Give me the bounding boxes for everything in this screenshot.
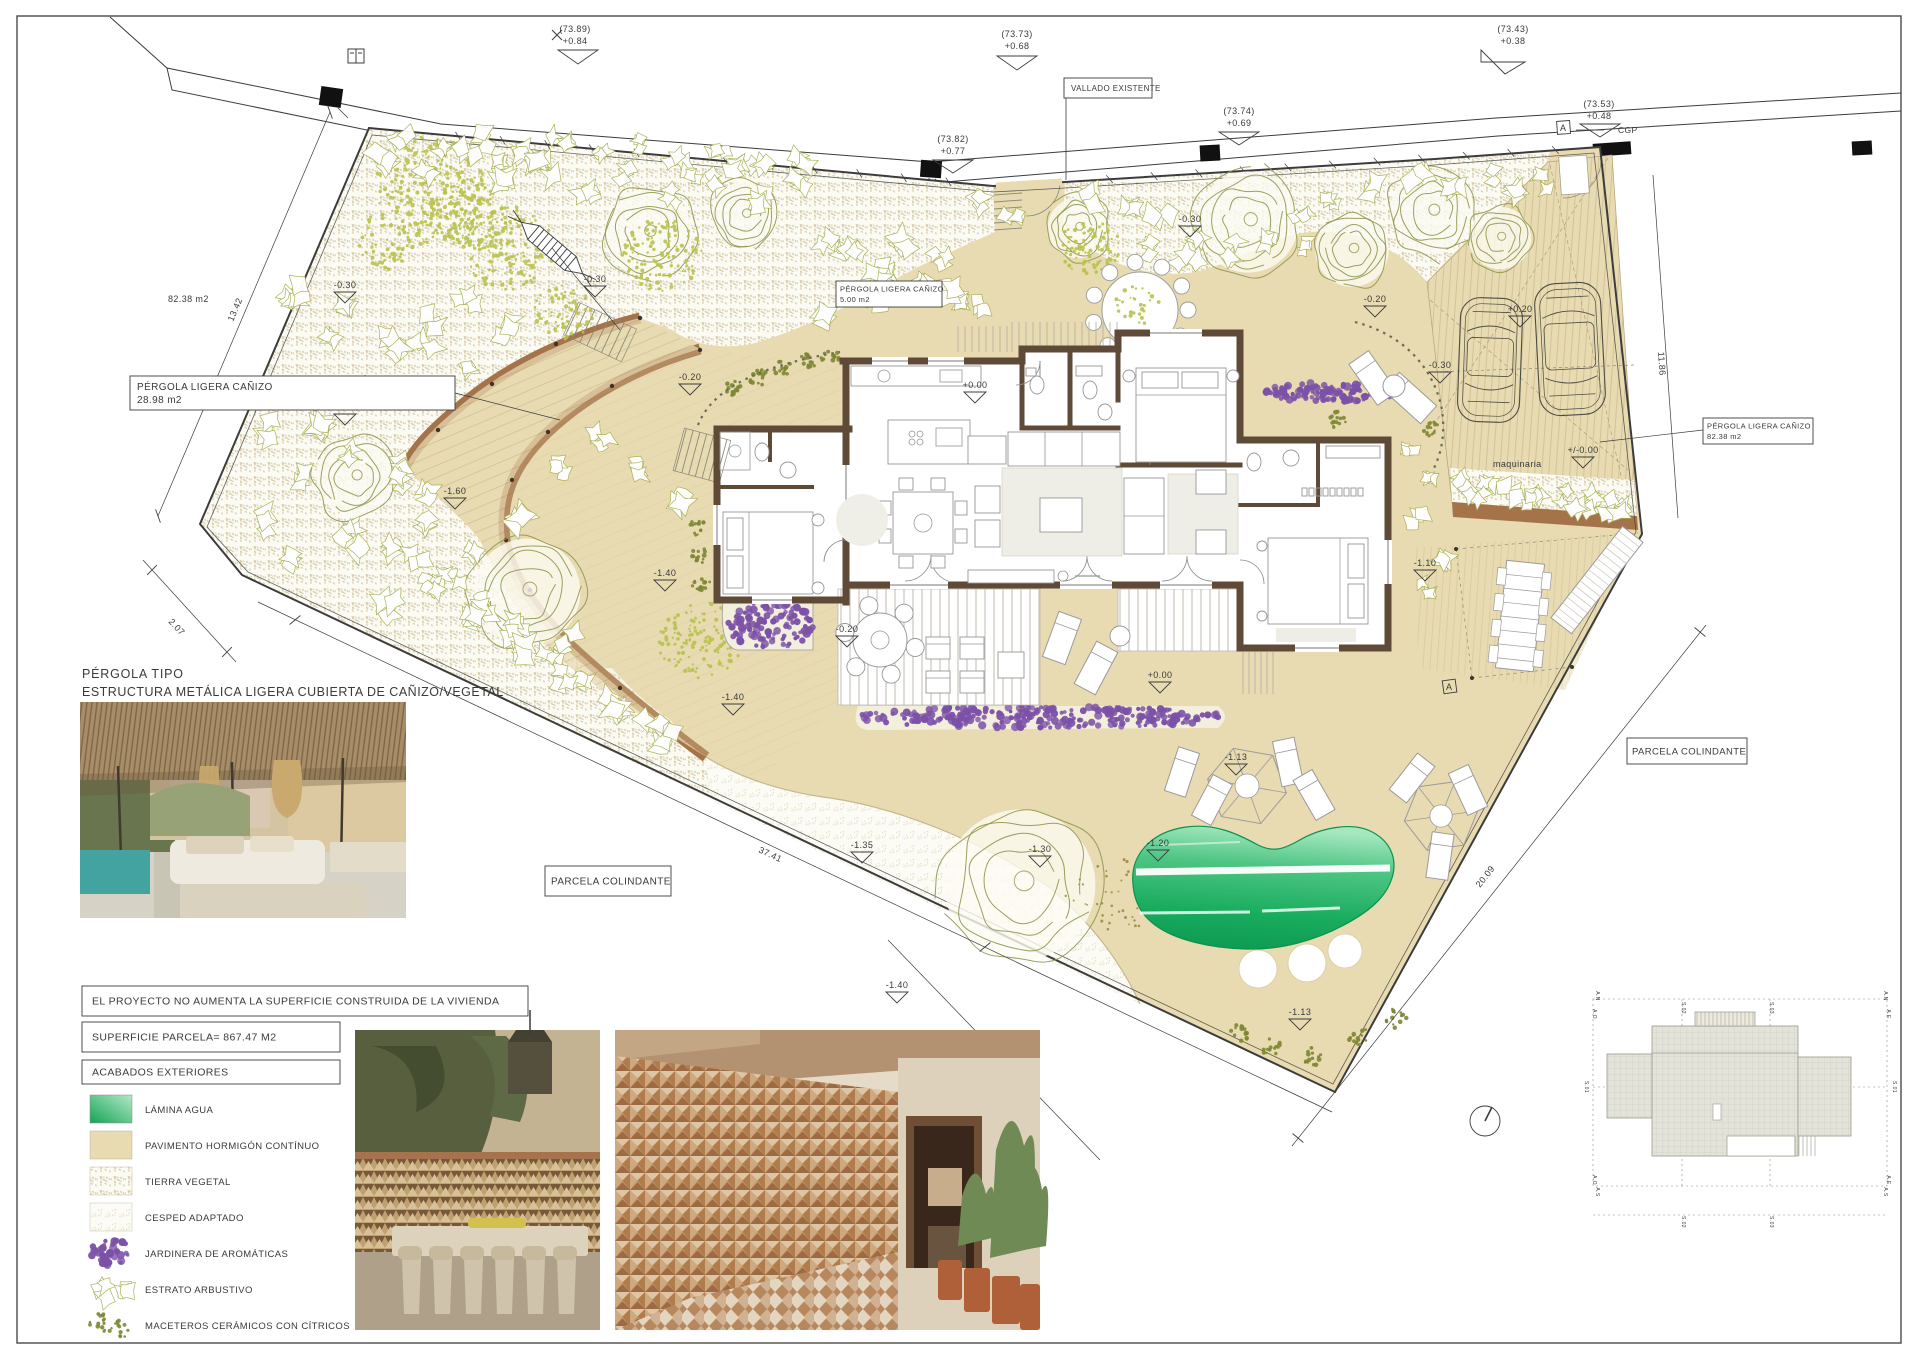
svg-text:PAVIMENTO HORMIGÓN CONTÍNUO: PAVIMENTO HORMIGÓN CONTÍNUO xyxy=(145,1141,319,1152)
svg-text:PÉRGOLA LIGERA CAÑIZO: PÉRGOLA LIGERA CAÑIZO xyxy=(137,380,273,393)
svg-text:PÉRGOLA TIPO: PÉRGOLA TIPO xyxy=(82,666,184,681)
svg-text:-0.20: -0.20 xyxy=(679,372,702,382)
svg-text:PÉRGOLA LIGERA CAÑIZO: PÉRGOLA LIGERA CAÑIZO xyxy=(1707,421,1811,430)
svg-text:(73.73): (73.73) xyxy=(1001,29,1032,39)
svg-text:maquinaria: maquinaria xyxy=(1493,459,1542,469)
svg-text:-1.30: -1.30 xyxy=(1029,844,1052,854)
svg-text:-1.35: -1.35 xyxy=(851,840,874,850)
svg-text:A.E: A.E xyxy=(1885,1009,1891,1019)
svg-text:-1.40: -1.40 xyxy=(654,568,677,578)
svg-text:ESTRUCTURA METÁLICA LIGERA CUB: ESTRUCTURA METÁLICA LIGERA CUBIERTA DE C… xyxy=(82,684,504,699)
svg-text:+0.84: +0.84 xyxy=(563,36,588,46)
svg-text:+0.38: +0.38 xyxy=(1501,36,1526,46)
svg-text:(73.89): (73.89) xyxy=(559,24,590,34)
svg-text:A: A xyxy=(1560,123,1566,133)
svg-text:A: A xyxy=(1446,682,1452,692)
svg-text:+0.00: +0.00 xyxy=(963,380,988,390)
svg-text:+0.20: +0.20 xyxy=(1508,304,1533,314)
svg-text:+0.68: +0.68 xyxy=(1005,41,1030,51)
svg-text:-0.30: -0.30 xyxy=(584,274,607,284)
svg-text:-1.40: -1.40 xyxy=(886,980,909,990)
svg-text:PÉRGOLA LIGERA CAÑIZO: PÉRGOLA LIGERA CAÑIZO xyxy=(840,284,944,293)
svg-text:A.O: A.O xyxy=(1591,1009,1597,1019)
svg-text:SUPERFICIE PARCELA= 867.47 M2: SUPERFICIE PARCELA= 867.47 M2 xyxy=(92,1032,276,1044)
svg-text:S.02: S.02 xyxy=(1680,1216,1686,1228)
svg-text:11.86: 11.86 xyxy=(1656,351,1668,375)
svg-text:MACETEROS CERÁMICOS CON CÍTRIC: MACETEROS CERÁMICOS CON CÍTRICOS xyxy=(145,1321,350,1332)
svg-text:A.S: A.S xyxy=(1882,1187,1888,1197)
svg-text:LÁMINA AGUA: LÁMINA AGUA xyxy=(145,1105,214,1116)
svg-text:+0.77: +0.77 xyxy=(941,146,966,156)
svg-text:A.S: A.S xyxy=(1594,1187,1600,1197)
svg-text:(73.74): (73.74) xyxy=(1223,106,1254,116)
svg-text:-1.40: -1.40 xyxy=(722,692,745,702)
svg-text:-0.20: -0.20 xyxy=(836,624,859,634)
svg-text:ESTRATO ARBUSTIVO: ESTRATO ARBUSTIVO xyxy=(145,1285,253,1296)
svg-text:A.N: A.N xyxy=(1882,991,1888,1001)
svg-text:-1.13: -1.13 xyxy=(1225,752,1248,762)
svg-text:-0.30: -0.30 xyxy=(1179,214,1202,224)
svg-text:82.38 m2: 82.38 m2 xyxy=(168,294,209,304)
svg-text:28.98 m2: 28.98 m2 xyxy=(137,395,182,406)
svg-text:-1.13: -1.13 xyxy=(1289,1007,1312,1017)
svg-text:ACABADOS EXTERIORES: ACABADOS EXTERIORES xyxy=(92,1067,229,1079)
svg-text:82.38 m2: 82.38 m2 xyxy=(1707,432,1741,441)
svg-text:VALLADO EXISTENTE: VALLADO EXISTENTE xyxy=(1071,84,1161,93)
svg-text:JARDINERA DE AROMÁTICAS: JARDINERA DE AROMÁTICAS xyxy=(145,1249,288,1260)
svg-text:TIERRA VEGETAL: TIERRA VEGETAL xyxy=(145,1177,231,1188)
svg-text:+0.69: +0.69 xyxy=(1227,118,1252,128)
svg-text:-0.30: -0.30 xyxy=(334,280,357,290)
svg-text:+/-0.00: +/-0.00 xyxy=(1567,445,1598,455)
svg-text:CESPED ADAPTADO: CESPED ADAPTADO xyxy=(145,1213,244,1224)
svg-text:5.00 m2: 5.00 m2 xyxy=(840,295,870,304)
svg-text:S.01: S.01 xyxy=(1583,1081,1589,1093)
svg-text:-1.10: -1.10 xyxy=(1414,558,1437,568)
svg-text:(73.82): (73.82) xyxy=(937,134,968,144)
svg-text:+0.48: +0.48 xyxy=(1587,111,1612,121)
svg-text:A.N: A.N xyxy=(1594,991,1600,1001)
svg-text:(73.53): (73.53) xyxy=(1583,99,1614,109)
svg-text:-0.20: -0.20 xyxy=(1364,294,1387,304)
svg-text:A.E: A.E xyxy=(1885,1175,1891,1185)
svg-text:PARCELA COLINDANTE: PARCELA COLINDANTE xyxy=(1632,746,1746,757)
svg-text:CGP: CGP xyxy=(1618,125,1638,135)
svg-text:PARCELA COLINDANTE: PARCELA COLINDANTE xyxy=(551,877,671,888)
svg-text:(73.43): (73.43) xyxy=(1497,24,1528,34)
svg-text:A.O: A.O xyxy=(1591,1175,1597,1185)
svg-text:S.01: S.01 xyxy=(1891,1081,1897,1093)
svg-text:-1.20: -1.20 xyxy=(1147,838,1170,848)
svg-text:+0.00: +0.00 xyxy=(1148,670,1173,680)
svg-text:S.02: S.02 xyxy=(1680,1002,1686,1014)
svg-text:EL PROYECTO NO AUMENTA LA SUPE: EL PROYECTO NO AUMENTA LA SUPERFICIE CON… xyxy=(92,996,499,1008)
svg-text:-0.30: -0.30 xyxy=(1429,360,1452,370)
svg-text:-1.60: -1.60 xyxy=(444,486,467,496)
svg-text:S.03: S.03 xyxy=(1768,1002,1774,1014)
svg-text:S.03: S.03 xyxy=(1768,1216,1774,1228)
